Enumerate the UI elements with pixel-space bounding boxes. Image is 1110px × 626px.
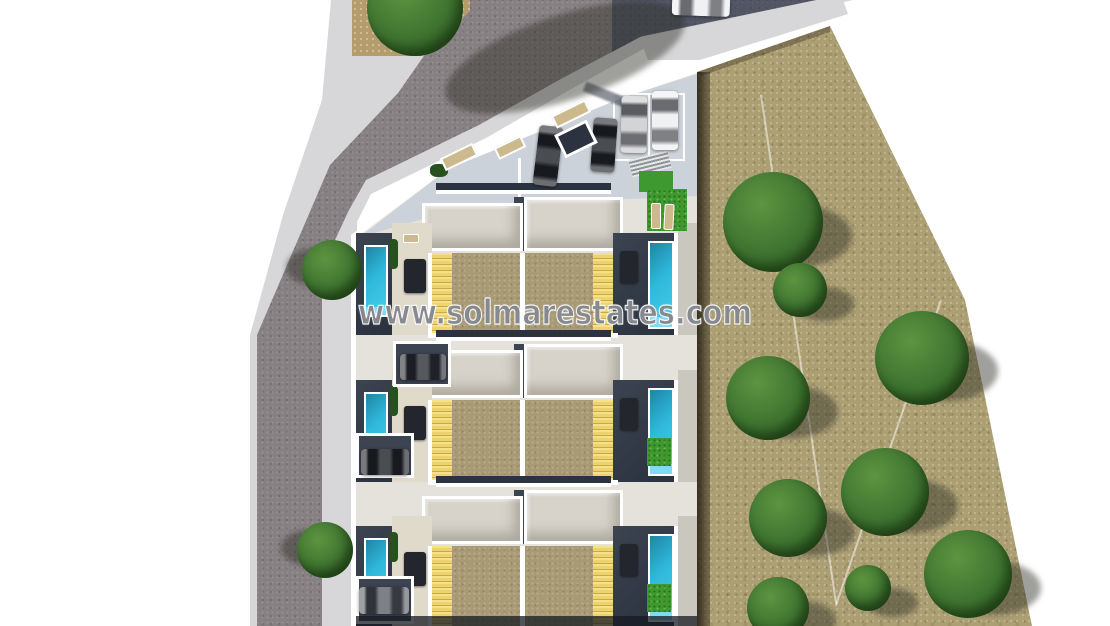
field-tree — [924, 530, 1012, 618]
site-plan-render: www.solmarestates.com — [0, 0, 1110, 626]
field-tree — [723, 172, 823, 272]
watermark: www.solmarestates.com — [358, 293, 752, 333]
field-tree — [875, 311, 969, 405]
parked-car-bay — [652, 91, 678, 150]
driveway-car — [359, 587, 409, 614]
street-bench — [494, 135, 527, 160]
street-tree — [297, 522, 353, 578]
parked-car-courtyard — [590, 117, 618, 173]
field-tree — [773, 263, 827, 317]
sun-lounger — [651, 203, 661, 229]
street-tree — [367, 0, 463, 56]
sun-lounger — [663, 204, 674, 230]
driveway-car — [361, 449, 409, 475]
field-tree — [747, 577, 809, 626]
field-tree — [749, 479, 827, 557]
field-tree — [726, 356, 810, 440]
parked-car-bay — [621, 96, 648, 153]
field-tree — [841, 448, 929, 536]
parked-car-street — [672, 0, 731, 17]
driveway-car — [400, 354, 446, 380]
street-bench — [440, 143, 478, 171]
street-tree — [302, 240, 362, 300]
field-tree — [845, 565, 891, 611]
sun-lounger — [403, 234, 419, 243]
